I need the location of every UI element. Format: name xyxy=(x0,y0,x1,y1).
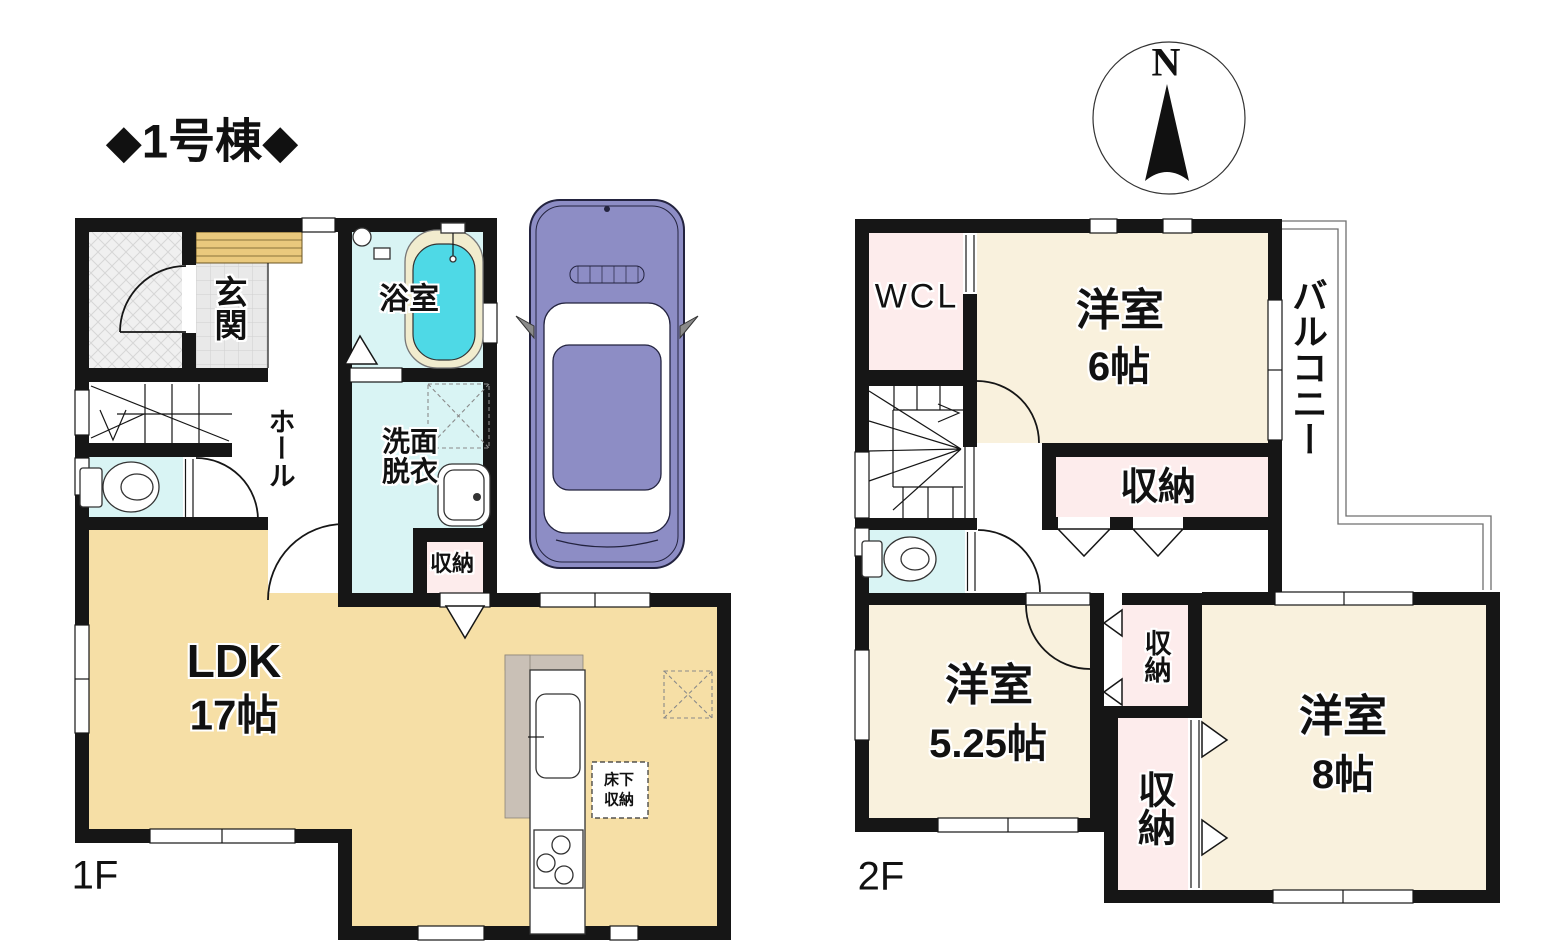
label-underfloor-line1: 床下 xyxy=(604,769,634,790)
room-label-bedroom6: 洋室 xyxy=(1076,274,1164,338)
room-label-hall: ホール xyxy=(261,408,300,489)
room-label-balcony: バルコニー xyxy=(1281,277,1333,457)
room-label-washroom-line2: 脱衣 xyxy=(382,450,438,490)
page-title: ◆1号棟◆ xyxy=(106,103,298,172)
stairs1-icon xyxy=(91,384,232,443)
toilet1-door xyxy=(186,458,259,520)
storage-small-doors xyxy=(1104,610,1122,705)
room-label-storage1: 収納 xyxy=(430,546,474,578)
floor2-label: 2F xyxy=(858,855,905,900)
kitchen-sink-icon xyxy=(536,694,580,778)
stairs2-icon xyxy=(869,386,963,518)
room-label-ldk: LDK xyxy=(187,634,282,688)
toilet2-door xyxy=(968,530,1041,592)
room-label-bedroom6-size: 6帖 xyxy=(1088,334,1150,392)
ldk-door-arc xyxy=(268,524,344,600)
wcl-door xyxy=(966,235,974,292)
room-label-storage-tall: 収納 xyxy=(1126,770,1181,846)
toilet1-icon xyxy=(80,462,159,512)
room-label-ldk-size: 17帖 xyxy=(190,682,279,743)
room-label-bedroom8-size: 8帖 xyxy=(1312,742,1374,800)
room-label-storage-main: 収納 xyxy=(1120,456,1196,511)
room-label-storage-small: 収納 xyxy=(1137,629,1176,683)
toilet2-icon xyxy=(862,537,936,581)
floorplan-page: ◆1号棟◆ N 玄関 浴室 洗面 脱衣 ホール 収納 LDK 17帖 床下 収納… xyxy=(0,0,1565,945)
room-label-bedroom525-size: 5.25帖 xyxy=(929,711,1047,769)
room-label-bedroom525: 洋室 xyxy=(945,649,1033,713)
floor1-label: 1F xyxy=(72,854,119,899)
room-label-wcl: WCL xyxy=(875,278,960,317)
label-underfloor-line2: 収納 xyxy=(604,789,634,810)
stove-icon xyxy=(534,830,583,888)
genkan-wood-step xyxy=(196,232,302,263)
compass-north-label: N xyxy=(1152,39,1181,86)
car-icon xyxy=(516,200,698,568)
room-label-genkan: 玄関 xyxy=(204,275,252,341)
washbasin-icon xyxy=(438,464,490,526)
storage-main-doors xyxy=(1058,529,1183,556)
stairwell-edge xyxy=(965,447,974,518)
entry-porch xyxy=(89,232,182,368)
room-label-bath: 浴室 xyxy=(379,274,439,318)
room-label-bedroom8: 洋室 xyxy=(1299,680,1387,744)
